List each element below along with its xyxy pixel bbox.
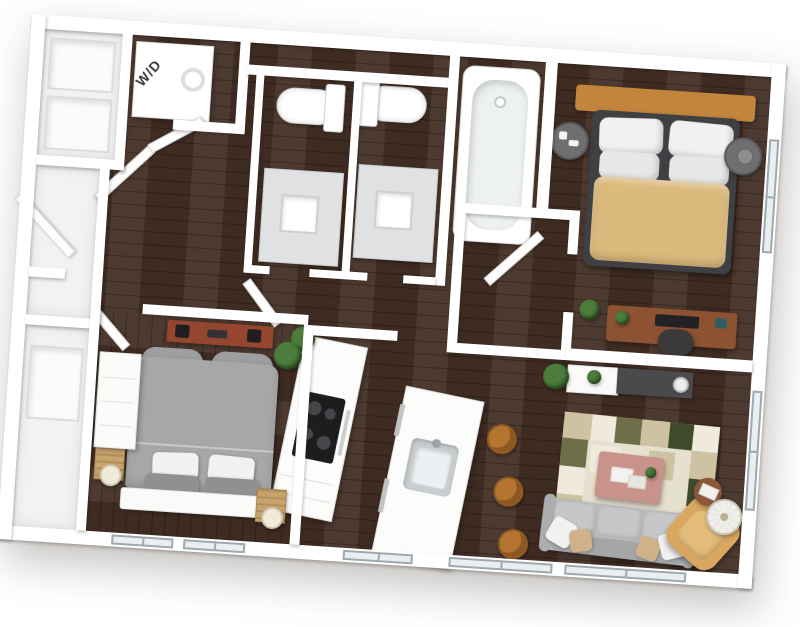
pillow	[599, 117, 664, 155]
sink-basin	[409, 445, 452, 490]
coffee-table	[594, 451, 665, 504]
desk-accessory	[715, 318, 728, 329]
window-mullion	[142, 538, 144, 544]
cabinet-line	[281, 474, 334, 486]
burner	[315, 435, 332, 452]
window-mullion	[500, 562, 502, 568]
window-mullion	[214, 543, 216, 549]
sink-basin	[279, 194, 319, 234]
toilet-tank	[323, 84, 346, 133]
burner	[324, 408, 337, 421]
floorplan-scene: W/D	[0, 0, 800, 627]
faucet	[431, 438, 442, 449]
speaker	[247, 329, 262, 343]
rug-patch	[668, 422, 695, 450]
rug-patch	[614, 417, 642, 445]
rug-patch	[692, 425, 720, 453]
sink-basin	[374, 190, 414, 230]
wall-segment	[251, 265, 269, 274]
rug-patch	[689, 451, 718, 481]
closet-shelf	[47, 37, 116, 93]
window-mullion	[751, 451, 757, 453]
master-bed-duvet	[589, 176, 730, 269]
rug-patch	[557, 465, 586, 495]
decor-items	[559, 131, 568, 140]
gadget	[207, 329, 227, 338]
island-sink	[402, 437, 460, 498]
rug-patch	[640, 419, 670, 448]
rug-patch	[590, 414, 617, 442]
drawer-line	[101, 400, 133, 403]
window-mullion	[378, 554, 380, 560]
speaker	[175, 324, 190, 338]
closet-shelf	[25, 345, 84, 422]
decor-items	[568, 140, 578, 147]
washer-dryer-label: W/D	[132, 56, 164, 89]
window-mullion	[625, 571, 627, 577]
drawer-line	[100, 424, 132, 427]
drawer-line	[103, 377, 135, 380]
closet-shelf	[43, 95, 112, 153]
dresser	[93, 351, 141, 450]
shower-vanity	[258, 168, 344, 267]
rug-patch	[562, 412, 592, 441]
washer-drum	[180, 67, 206, 93]
shower-vanity	[353, 164, 439, 263]
books	[627, 475, 646, 490]
rug-patch	[560, 437, 589, 467]
washer-dryer-unit: W/D	[131, 41, 214, 122]
throw-pillow	[569, 529, 593, 553]
table-plant	[645, 466, 657, 478]
desk-chair	[657, 328, 695, 356]
window-mullion	[767, 196, 773, 198]
sofa-seat-cushion	[596, 506, 643, 541]
apartment-floorplan: W/D	[0, 14, 786, 589]
